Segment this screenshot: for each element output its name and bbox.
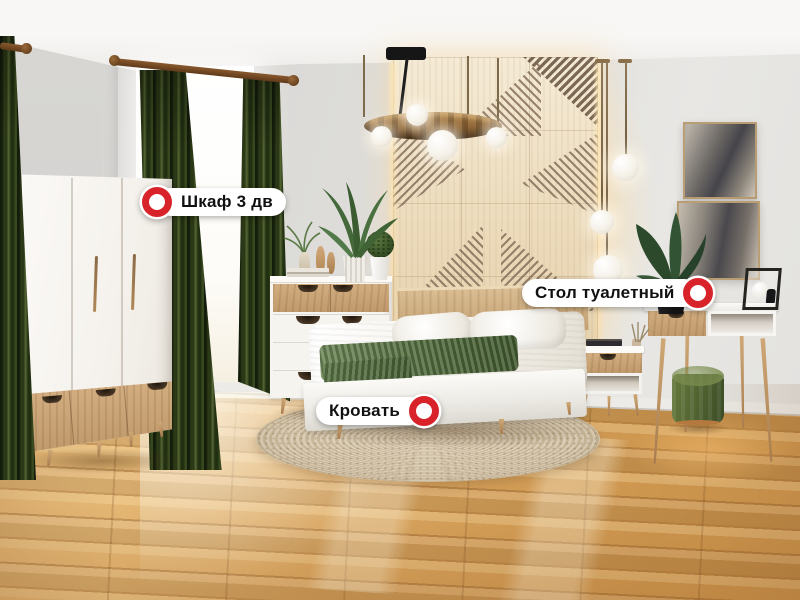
pendant-bulb	[590, 210, 614, 234]
pouf-top	[672, 366, 724, 386]
chandelier-wire	[497, 58, 499, 126]
dressing-table-leg	[652, 338, 667, 464]
drawer-notch	[296, 316, 320, 324]
hotspot-wardrobe[interactable]: Шкаф 3 дв	[142, 187, 286, 217]
drawer-divider	[330, 284, 331, 312]
hotspot-bed[interactable]: Кровать	[316, 396, 439, 426]
drawer-notch	[298, 285, 318, 292]
palm-pot	[342, 256, 368, 282]
hotspot-marker-icon[interactable]	[142, 187, 172, 217]
pendant-bulb	[612, 154, 639, 181]
drawer-notch	[333, 285, 353, 292]
pendant-cord	[601, 62, 603, 213]
dresser-oak-drawers	[273, 284, 389, 312]
drawer-notch	[147, 382, 168, 391]
hotspot-label: Кровать	[316, 397, 424, 425]
wardrobe-handle	[131, 254, 136, 310]
curtain-rod-finial	[109, 55, 120, 66]
green-pouf	[672, 366, 724, 428]
hotspot-marker-icon[interactable]	[683, 278, 713, 308]
boxwood-plant	[366, 231, 394, 258]
drawer-notch	[96, 388, 117, 397]
drawer-notch	[42, 395, 63, 404]
dressing-table-shelf	[708, 311, 776, 336]
wall-art-top	[683, 122, 757, 199]
drawer-notch	[600, 354, 616, 360]
chandelier-globe	[406, 104, 428, 126]
drawer-divider	[123, 386, 129, 444]
chandelier-globe	[427, 130, 458, 161]
wardrobe-handle	[93, 256, 98, 312]
pendant-cord	[625, 62, 627, 157]
dressing-table-drawer	[648, 311, 706, 336]
curtain-rod-finial	[21, 43, 32, 54]
hotspot-label: Шкаф 3 дв	[157, 188, 286, 216]
nightstand-leg	[607, 396, 611, 416]
nightstand-drawer	[578, 353, 642, 373]
drawer-divider	[69, 390, 75, 448]
wardrobe-shadow	[18, 448, 186, 474]
hotspot-label: Стол туалетный	[522, 279, 698, 307]
vanity-mirror	[742, 268, 782, 310]
nightstand-shelf	[578, 373, 642, 394]
perfume-bottle	[766, 289, 776, 303]
panel-stripe	[521, 133, 598, 215]
book-stack	[287, 268, 329, 277]
nightstand-top	[576, 346, 644, 353]
dressing-table-leg	[760, 338, 775, 462]
chandelier-globe	[371, 126, 392, 147]
hotspot-marker-icon[interactable]	[409, 396, 439, 426]
hotspot-dressing-table[interactable]: Стол туалетный	[522, 278, 713, 308]
chandelier-globe	[486, 127, 507, 148]
sprig-stems	[284, 222, 320, 252]
curtain-rod-finial	[288, 75, 299, 86]
chandelier-wire	[467, 56, 469, 118]
dressing-table-leg	[739, 336, 746, 428]
bedroom-scene: Шкаф 3 дв Стол туалетный Кровать	[0, 0, 800, 600]
nightstand-books	[586, 339, 622, 346]
nightstand-leg	[633, 394, 641, 416]
pouf-base-ring	[676, 420, 720, 425]
chandelier-wire	[363, 55, 365, 117]
